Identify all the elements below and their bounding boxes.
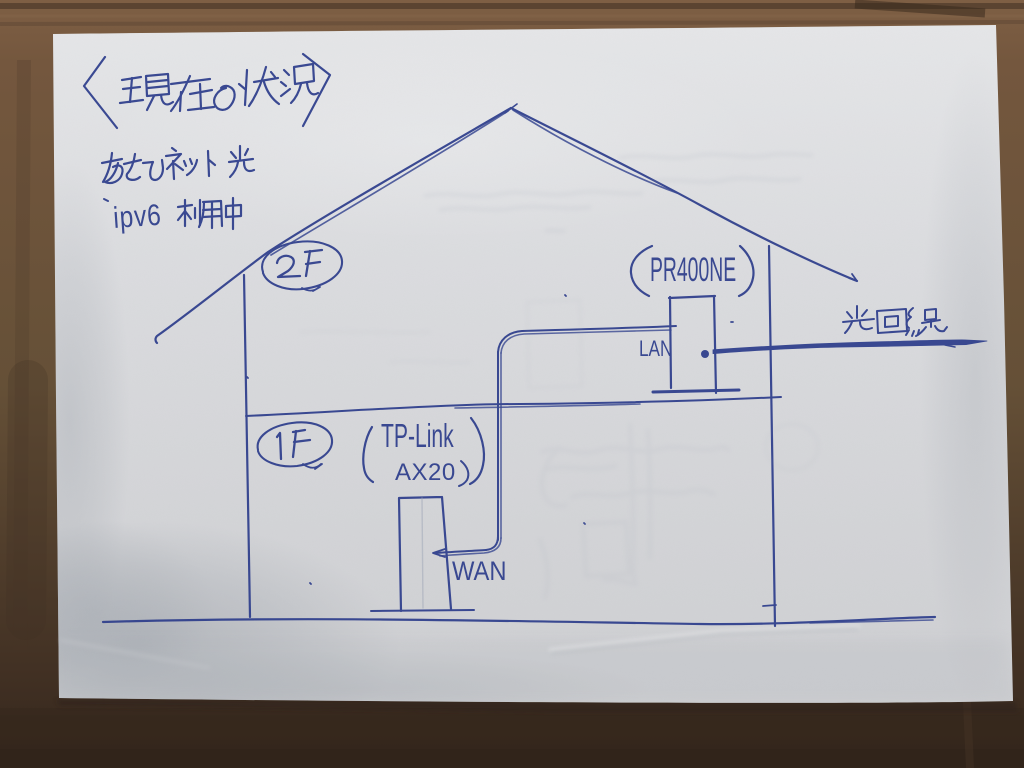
svg-text:LAN: LAN bbox=[639, 337, 672, 362]
svg-text:AX20: AX20 bbox=[395, 459, 456, 486]
svg-text:TP-Link: TP-Link bbox=[381, 417, 454, 454]
svg-text:PR400NE: PR400NE bbox=[650, 250, 736, 288]
svg-text:WAN: WAN bbox=[452, 557, 507, 587]
svg-text:ipv6: ipv6 bbox=[112, 197, 163, 234]
